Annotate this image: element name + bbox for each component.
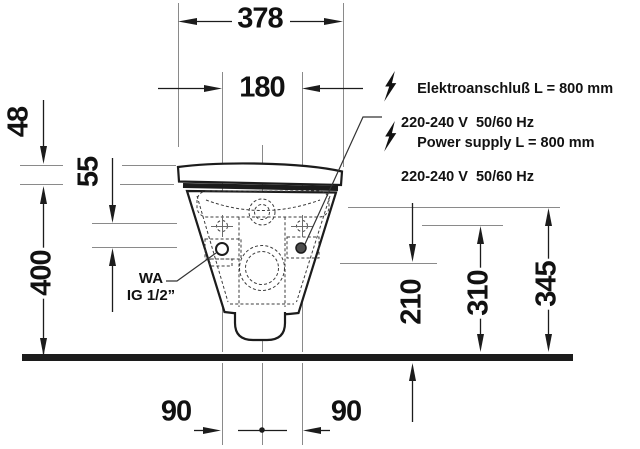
dim-lid-thickness: 48 bbox=[5, 104, 34, 140]
power-note-english-line2: 220-240 V 50/60 Hz bbox=[401, 169, 595, 186]
power-note-english: Power supply L = 800 mm 220-240 V 50/60 … bbox=[401, 118, 595, 220]
power-connection-point bbox=[296, 243, 306, 253]
floor-line bbox=[22, 354, 573, 361]
power-note-german-line1: Elektroanschluß L = 800 mm bbox=[417, 81, 613, 97]
toilet-lid bbox=[178, 163, 342, 185]
power-note-english-line1: Power supply L = 800 mm bbox=[417, 135, 594, 151]
drain-center-mark bbox=[259, 427, 265, 433]
toilet-outlet bbox=[235, 312, 285, 340]
toilet-seat-band bbox=[183, 186, 338, 189]
dim-overall-width: 378 bbox=[234, 5, 285, 34]
water-label-line2: IG 1/2” bbox=[127, 287, 175, 304]
technical-drawing-page: 378 180 48 55 400 210 310 345 90 90 Elek… bbox=[0, 0, 640, 449]
water-connection-point bbox=[216, 243, 228, 255]
water-connection-label: WA IG 1/2” bbox=[127, 270, 175, 304]
lightning-bolt-icon bbox=[383, 121, 397, 152]
lightning-bolt-icon bbox=[383, 71, 397, 102]
dim-fixing-width: 180 bbox=[236, 74, 287, 103]
dim-supply-height: 345 bbox=[533, 258, 562, 309]
toilet-bowl-body bbox=[187, 191, 336, 315]
water-label-line1: WA bbox=[127, 270, 175, 287]
dim-offset-right: 90 bbox=[328, 398, 364, 427]
dim-outlet-height: 310 bbox=[465, 267, 494, 318]
dim-seat-drop: 55 bbox=[75, 154, 104, 190]
dim-connection-height: 210 bbox=[398, 276, 427, 327]
dim-seat-height: 400 bbox=[28, 247, 57, 298]
dim-offset-left: 90 bbox=[158, 398, 194, 427]
